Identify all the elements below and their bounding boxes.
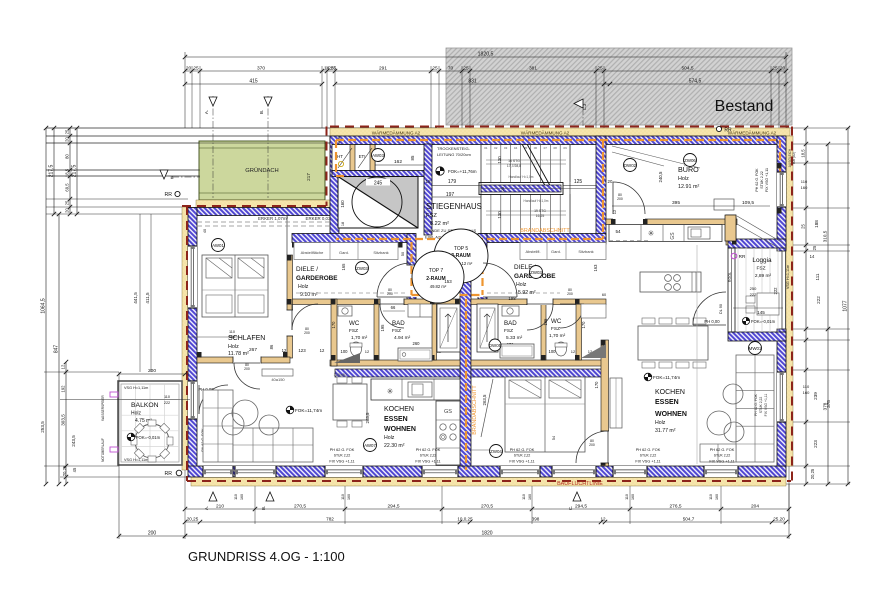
svg-text:110: 110	[341, 494, 345, 500]
svg-text:FIX VSG +1,11: FIX VSG +1,11	[415, 460, 440, 464]
svg-text:ESSEN: ESSEN	[384, 416, 408, 423]
svg-text:25: 25	[772, 66, 778, 72]
svg-text:RR: RR	[724, 128, 732, 134]
svg-text:06: 06	[534, 146, 538, 150]
svg-text:GS: GS	[670, 232, 676, 240]
svg-text:111: 111	[815, 273, 820, 280]
svg-text:70: 70	[448, 66, 454, 72]
svg-text:STUK 2,22: STUK 2,22	[640, 454, 657, 458]
svg-text:C.: C.	[568, 506, 573, 511]
svg-text:WC: WC	[349, 320, 360, 327]
svg-text:294,5: 294,5	[387, 504, 399, 510]
svg-text:782: 782	[326, 517, 334, 522]
svg-text:267: 267	[249, 347, 257, 353]
svg-text:07: 07	[544, 146, 548, 150]
svg-text:NOTÜBERLAUF: NOTÜBERLAUF	[101, 438, 105, 462]
svg-text:VSG H=1,11m: VSG H=1,11m	[786, 265, 790, 289]
svg-text:08: 08	[554, 146, 558, 150]
svg-text:FIX VSG +1,11: FIX VSG +1,11	[635, 460, 660, 464]
svg-text:80: 80	[65, 154, 70, 159]
svg-text:RR: RR	[165, 192, 173, 198]
svg-text:294,5: 294,5	[575, 504, 587, 510]
svg-text:WC: WC	[551, 318, 562, 325]
svg-text:20: 20	[186, 66, 192, 72]
svg-text:AW01: AW01	[212, 243, 224, 248]
svg-text:162: 162	[394, 159, 402, 165]
svg-text:40: 40	[203, 229, 207, 233]
svg-text:222: 222	[164, 401, 170, 405]
svg-text:239: 239	[813, 392, 818, 400]
svg-text:DL 90: DL 90	[719, 304, 723, 314]
svg-text:A.: A.	[204, 506, 209, 510]
svg-text:02: 02	[494, 146, 498, 150]
svg-text:179: 179	[448, 179, 457, 185]
svg-text:ERKER 0,03: ERKER 0,03	[306, 216, 331, 221]
svg-text:270,5: 270,5	[294, 504, 306, 510]
svg-text:BRANDABSCHNITT: BRANDABSCHNITT	[520, 228, 570, 234]
svg-text:Loggia: Loggia	[752, 257, 772, 264]
svg-text:16 STG: 16 STG	[508, 159, 520, 163]
svg-text:18,5: 18,5	[801, 149, 806, 158]
svg-text:310,5: 310,5	[823, 230, 828, 242]
svg-text:RR: RR	[739, 254, 746, 259]
svg-text:1077: 1077	[843, 300, 849, 311]
svg-text:260: 260	[413, 341, 421, 346]
svg-text:160: 160	[631, 494, 635, 500]
svg-text:415: 415	[249, 79, 258, 85]
svg-text:504,5: 504,5	[681, 66, 693, 72]
svg-text:110: 110	[522, 494, 526, 500]
svg-text:192: 192	[61, 385, 66, 393]
svg-text:381: 381	[529, 66, 537, 72]
svg-text:STUK 2,22: STUK 2,22	[759, 397, 763, 414]
svg-text:153: 153	[444, 279, 452, 284]
svg-text:PH 62 G. FOK: PH 62 G. FOK	[754, 393, 758, 416]
svg-text:18,5: 18,5	[65, 168, 70, 177]
svg-text:411,5: 411,5	[145, 292, 150, 304]
svg-text:160: 160	[347, 494, 351, 500]
svg-text:PH 62 G. FOK: PH 62 G. FOK	[755, 168, 759, 192]
svg-text:STUK 2,22: STUK 2,22	[334, 454, 351, 458]
svg-text:1820: 1820	[481, 531, 492, 537]
svg-text:12: 12	[365, 349, 370, 354]
svg-text:170: 170	[594, 381, 599, 389]
svg-text:RR: RR	[165, 471, 173, 477]
svg-text:200: 200	[617, 197, 623, 201]
svg-text:195: 195	[543, 318, 548, 326]
svg-text:FSZ: FSZ	[504, 328, 513, 334]
svg-text:✳: ✳	[387, 387, 394, 396]
svg-text:217,5: 217,5	[49, 165, 55, 178]
svg-text:A.: A.	[204, 110, 209, 114]
svg-text:B.: B.	[261, 506, 266, 510]
svg-text:110: 110	[625, 494, 629, 500]
svg-text:ZW03: ZW03	[356, 266, 368, 271]
svg-text:Handlauf H=1,0m: Handlauf H=1,0m	[509, 175, 534, 179]
svg-text:KOCHEN: KOCHEN	[384, 406, 414, 413]
svg-text:200: 200	[304, 331, 310, 335]
svg-text:5.92 m²: 5.92 m²	[518, 290, 536, 296]
svg-text:FSZ: FSZ	[349, 328, 358, 334]
svg-text:BAD: BAD	[392, 320, 405, 327]
svg-text:25: 25	[812, 245, 817, 250]
svg-text:FSZ: FSZ	[756, 266, 765, 272]
svg-text:ZW06: ZW06	[684, 158, 696, 163]
svg-text:160: 160	[715, 494, 719, 500]
svg-text:110: 110	[234, 494, 238, 500]
svg-text:25: 25	[597, 66, 603, 72]
svg-text:ERKER 1,07m²: ERKER 1,07m²	[258, 216, 289, 221]
svg-text:25: 25	[65, 129, 70, 134]
svg-text:20: 20	[780, 66, 786, 72]
svg-text:8.22 m²: 8.22 m²	[430, 221, 449, 227]
svg-text:109,5: 109,5	[742, 200, 754, 206]
svg-text:FOK=+11,76m: FOK=+11,76m	[448, 169, 477, 174]
svg-text:Abstellfläche: Abstellfläche	[301, 250, 324, 255]
svg-text:STUK 2,22: STUK 2,22	[514, 454, 531, 458]
svg-text:276,5: 276,5	[669, 504, 681, 510]
svg-text:110: 110	[229, 330, 235, 334]
svg-text:FIX VSG +1,11: FIX VSG +1,11	[509, 460, 534, 464]
svg-text:163: 163	[593, 264, 598, 272]
svg-text:31.77 m²: 31.77 m²	[655, 428, 676, 434]
svg-text:14,25: 14,25	[324, 66, 336, 72]
svg-text:ETI: ETI	[359, 154, 366, 159]
svg-text:110: 110	[803, 384, 810, 389]
svg-text:4.94 m²: 4.94 m²	[394, 335, 411, 341]
svg-text:12: 12	[571, 349, 576, 354]
svg-text:12: 12	[282, 348, 287, 353]
svg-text:DIELE /: DIELE /	[296, 266, 318, 273]
svg-text:263,5: 263,5	[365, 412, 370, 424]
svg-text:DW05: DW05	[489, 343, 502, 348]
svg-text:200: 200	[148, 368, 156, 374]
svg-text:Holz: Holz	[384, 435, 395, 441]
svg-text:ZW03: ZW03	[530, 270, 542, 275]
svg-text:222: 222	[750, 292, 757, 297]
svg-text:222: 222	[773, 287, 778, 295]
svg-text:ZW04: ZW04	[490, 449, 502, 454]
svg-text:60: 60	[602, 293, 606, 297]
svg-text:395: 395	[672, 200, 680, 206]
svg-text:204: 204	[751, 504, 759, 510]
svg-text:130: 130	[497, 156, 502, 164]
svg-text:22.30 m²: 22.30 m²	[384, 443, 405, 449]
svg-text:PH 62 G. FOK: PH 62 G. FOK	[330, 448, 355, 452]
svg-text:217,5: 217,5	[72, 165, 78, 178]
svg-text:20,25: 20,25	[810, 468, 815, 479]
svg-text:195: 195	[380, 324, 385, 332]
svg-text:PH 0,00: PH 0,00	[704, 319, 720, 324]
svg-text:FIX VSG +1,11: FIX VSG +1,11	[765, 168, 769, 192]
svg-text:223: 223	[813, 440, 818, 448]
svg-text:574,5: 574,5	[689, 79, 702, 85]
svg-text:DW02: DW02	[624, 163, 637, 168]
svg-text:MW01: MW01	[749, 346, 762, 351]
svg-text:Handlauf H=1,0m: Handlauf H=1,0m	[524, 199, 549, 203]
svg-text:222: 222	[816, 296, 821, 304]
svg-text:STUK 2,22: STUK 2,22	[760, 171, 764, 189]
svg-text:200: 200	[589, 443, 595, 447]
svg-text:ESSEN: ESSEN	[655, 399, 679, 406]
svg-text:25: 25	[463, 66, 469, 72]
svg-text:49.82 m²: 49.82 m²	[430, 284, 447, 289]
svg-text:60h (A2): 60h (A2)	[792, 152, 796, 164]
svg-text:09: 09	[563, 146, 567, 150]
svg-text:Abstellfl.: Abstellfl.	[525, 249, 540, 254]
svg-text:FIX VSG +1,11: FIX VSG +1,11	[709, 460, 734, 464]
svg-text:GRUNDRISS 4.OG - 1:100: GRUNDRISS 4.OG - 1:100	[188, 549, 345, 564]
svg-text:441,5: 441,5	[133, 292, 138, 304]
svg-text:VSG H=1,11m: VSG H=1,11m	[124, 386, 148, 390]
svg-text:18: 18	[341, 222, 345, 226]
svg-text:263,5: 263,5	[482, 394, 487, 406]
svg-text:WASSERSPEIER: WASSERSPEIER	[101, 395, 105, 421]
svg-text:FOK=11,74m: FOK=11,74m	[653, 375, 680, 380]
svg-text:123: 123	[298, 348, 306, 353]
svg-text:378: 378	[823, 402, 828, 410]
svg-text:847: 847	[54, 345, 60, 354]
svg-text:240,5: 240,5	[658, 171, 663, 183]
svg-text:210: 210	[216, 504, 224, 510]
svg-text:85: 85	[410, 155, 415, 160]
svg-text:TROCKENSTEIG-: TROCKENSTEIG-	[437, 146, 471, 151]
svg-text:STUK 2,22: STUK 2,22	[420, 454, 437, 458]
svg-text:LEITUNG 70/20cm: LEITUNG 70/20cm	[437, 152, 471, 157]
svg-text:125: 125	[574, 179, 583, 185]
svg-text:170: 170	[331, 321, 336, 329]
svg-text:66: 66	[391, 305, 396, 310]
svg-text:160: 160	[803, 390, 810, 395]
svg-text:198: 198	[508, 296, 516, 301]
svg-text:GS: GS	[444, 409, 452, 415]
svg-text:14: 14	[810, 254, 815, 259]
svg-text:110: 110	[801, 179, 808, 184]
svg-text:WOHNEN: WOHNEN	[384, 426, 416, 433]
svg-text:12: 12	[612, 209, 617, 214]
svg-text:25: 25	[432, 66, 438, 72]
svg-text:243,5: 243,5	[71, 435, 76, 447]
svg-text:100: 100	[341, 349, 349, 354]
svg-text:PH 62 G. FOK: PH 62 G. FOK	[636, 448, 661, 452]
svg-text:WÄRMEDÄMMUNG A2: WÄRMEDÄMMUNG A2	[728, 130, 777, 136]
svg-text:250: 250	[750, 286, 757, 291]
svg-text:10,0,25: 10,0,25	[457, 517, 473, 522]
svg-text:PH 62 G. FOK: PH 62 G. FOK	[710, 448, 735, 452]
svg-text:2,89 m²: 2,89 m²	[755, 273, 772, 279]
svg-text:1,70 m²: 1,70 m²	[549, 333, 566, 339]
svg-text:2-RAUM: 2-RAUM	[426, 276, 445, 282]
svg-text:Bestand: Bestand	[715, 98, 774, 115]
svg-text:197: 197	[446, 192, 455, 198]
svg-text:165: 165	[341, 263, 346, 271]
svg-text:GARDEROBE: GARDEROBE	[296, 275, 338, 282]
svg-text:STUK 2,22: STUK 2,22	[714, 454, 731, 458]
svg-text:Sitzbank: Sitzbank	[578, 249, 593, 254]
svg-text:25: 25	[65, 200, 70, 205]
svg-text:125x80: 125x80	[333, 372, 347, 377]
svg-text:145: 145	[757, 310, 765, 315]
svg-text:130: 130	[497, 211, 502, 219]
svg-text:Holz: Holz	[655, 420, 666, 426]
svg-text:Sitzbank: Sitzbank	[373, 250, 388, 255]
svg-text:Holz: Holz	[228, 344, 239, 350]
svg-text:Gard.: Gard.	[551, 249, 561, 254]
svg-text:BAD: BAD	[504, 320, 517, 327]
svg-text:01: 01	[484, 146, 488, 150]
svg-text:291: 291	[379, 66, 387, 72]
svg-text:BAUFLUCHTLINIE: BAUFLUCHTLINIE	[557, 481, 603, 487]
svg-text:20: 20	[65, 137, 70, 142]
svg-text:160: 160	[528, 494, 532, 500]
svg-text:20: 20	[65, 208, 70, 213]
svg-text:Holz: Holz	[298, 284, 309, 290]
svg-text:TOP 5: TOP 5	[454, 246, 468, 252]
svg-text:20: 20	[501, 187, 505, 191]
svg-text:12: 12	[320, 348, 325, 353]
svg-text:PH 62 G. FOK: PH 62 G. FOK	[416, 448, 441, 452]
svg-text:WOHNEN: WOHNEN	[655, 411, 687, 418]
svg-text:45: 45	[72, 467, 77, 472]
svg-text:FOK=-0,01m: FOK=-0,01m	[751, 319, 776, 324]
svg-text:B.: B.	[259, 110, 264, 114]
svg-text:69,5: 69,5	[65, 183, 70, 192]
svg-text:200: 200	[387, 292, 393, 296]
svg-text:54: 54	[615, 229, 621, 234]
svg-text:25: 25	[193, 66, 199, 72]
svg-text:19 STG: 19 STG	[534, 209, 546, 213]
svg-text:FIX VSG +1,11: FIX VSG +1,11	[764, 394, 768, 417]
svg-text:12: 12	[61, 364, 66, 369]
svg-text:398: 398	[532, 517, 540, 522]
svg-text:170: 170	[581, 321, 586, 329]
svg-text:188: 188	[814, 220, 819, 228]
svg-text:KOCHEN: KOCHEN	[655, 389, 685, 396]
svg-text:BRANDABSCHNITT: BRANDABSCHNITT	[472, 385, 478, 435]
svg-text:20: 20	[608, 179, 613, 184]
svg-text:FOK=11,74m: FOK=11,74m	[295, 408, 322, 413]
svg-text:160: 160	[240, 494, 244, 500]
svg-text:245: 245	[374, 181, 383, 187]
svg-text:50: 50	[401, 252, 405, 256]
svg-text:VSG H=1,11m: VSG H=1,11m	[124, 458, 148, 462]
svg-text:270,5: 270,5	[481, 504, 493, 510]
svg-text:TOP 7: TOP 7	[429, 268, 443, 274]
svg-text:GRÜNDACH: GRÜNDACH	[245, 167, 279, 174]
svg-text:18: 18	[425, 179, 431, 184]
svg-text:217: 217	[306, 173, 311, 181]
svg-text:110: 110	[164, 395, 170, 399]
svg-text:1064,5: 1064,5	[41, 298, 47, 314]
svg-text:200: 200	[567, 292, 573, 296]
svg-text:AW07: AW07	[364, 443, 376, 448]
svg-text:FSZ: FSZ	[426, 213, 437, 219]
svg-text:03: 03	[504, 146, 508, 150]
svg-text:FIX VSG +1,11: FIX VSG +1,11	[329, 460, 354, 464]
svg-text:40a150: 40a150	[271, 377, 285, 382]
svg-text:25: 25	[801, 224, 806, 229]
svg-text:86: 86	[269, 344, 274, 349]
svg-text:WÄRMEDÄMMUNG A2: WÄRMEDÄMMUNG A2	[372, 130, 421, 136]
svg-text:200: 200	[244, 367, 250, 371]
svg-text:AW03: AW03	[372, 153, 384, 158]
svg-text:303,5: 303,5	[61, 414, 66, 426]
svg-text:25,20: 25,20	[773, 517, 785, 522]
svg-text:WÄRMEDÄMMUNG A2: WÄRMEDÄMMUNG A2	[521, 130, 570, 136]
svg-text:370: 370	[257, 66, 265, 72]
svg-text:04: 04	[514, 146, 518, 150]
svg-text:110: 110	[709, 494, 713, 500]
svg-text:20,25: 20,25	[62, 465, 67, 476]
svg-text:160: 160	[801, 185, 808, 190]
svg-text:16,25: 16,25	[536, 214, 545, 218]
svg-text:✳: ✳	[648, 229, 655, 238]
svg-text:FOK=-0,01m: FOK=-0,01m	[136, 435, 161, 440]
svg-text:9.10 m²: 9.10 m²	[300, 292, 318, 298]
svg-text:FSZ: FSZ	[392, 328, 401, 334]
svg-text:1,70 m²: 1,70 m²	[351, 335, 368, 341]
svg-text:HT: HT	[337, 154, 343, 159]
svg-text:17,7/28,8: 17,7/28,8	[507, 164, 521, 168]
svg-text:160: 160	[340, 200, 345, 208]
svg-text:BALKON: BALKON	[131, 402, 159, 409]
svg-text:B: B	[170, 175, 173, 180]
svg-text:831: 831	[468, 79, 477, 85]
svg-text:504,7: 504,7	[683, 517, 695, 522]
svg-text:12: 12	[600, 517, 606, 522]
svg-text:100: 100	[549, 349, 557, 354]
svg-text:54: 54	[552, 436, 556, 440]
svg-text:RGOL: RGOL	[728, 272, 732, 282]
svg-text:Gard.: Gard.	[339, 250, 349, 255]
svg-text:PH 62 G. FOK: PH 62 G. FOK	[510, 448, 535, 452]
svg-text:5.33 m²: 5.33 m²	[506, 335, 523, 341]
svg-text:11.78 m²: 11.78 m²	[228, 351, 249, 357]
svg-text:1820,5: 1820,5	[478, 52, 494, 58]
svg-text:20,25: 20,25	[187, 517, 199, 522]
svg-text:Holz: Holz	[131, 411, 142, 417]
svg-text:FSZ: FSZ	[551, 326, 560, 332]
svg-text:Holz: Holz	[678, 176, 689, 182]
svg-text:200: 200	[148, 531, 157, 537]
svg-text:Holz: Holz	[516, 282, 527, 288]
svg-text:STIEGENHAUS: STIEGENHAUS	[426, 202, 482, 211]
svg-text:253,5: 253,5	[40, 421, 45, 433]
svg-text:12.91 m²: 12.91 m²	[678, 184, 699, 190]
